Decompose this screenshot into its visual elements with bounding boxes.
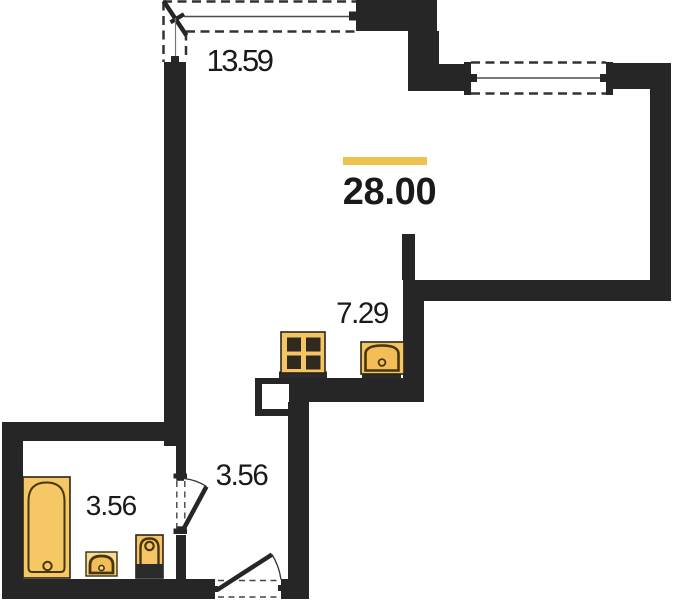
svg-text:7.29: 7.29 bbox=[336, 297, 389, 330]
svg-text:3.56: 3.56 bbox=[216, 459, 269, 492]
svg-text:13.59: 13.59 bbox=[206, 43, 272, 78]
svg-text:3.56: 3.56 bbox=[86, 490, 137, 521]
svg-text:28.00: 28.00 bbox=[343, 171, 437, 213]
